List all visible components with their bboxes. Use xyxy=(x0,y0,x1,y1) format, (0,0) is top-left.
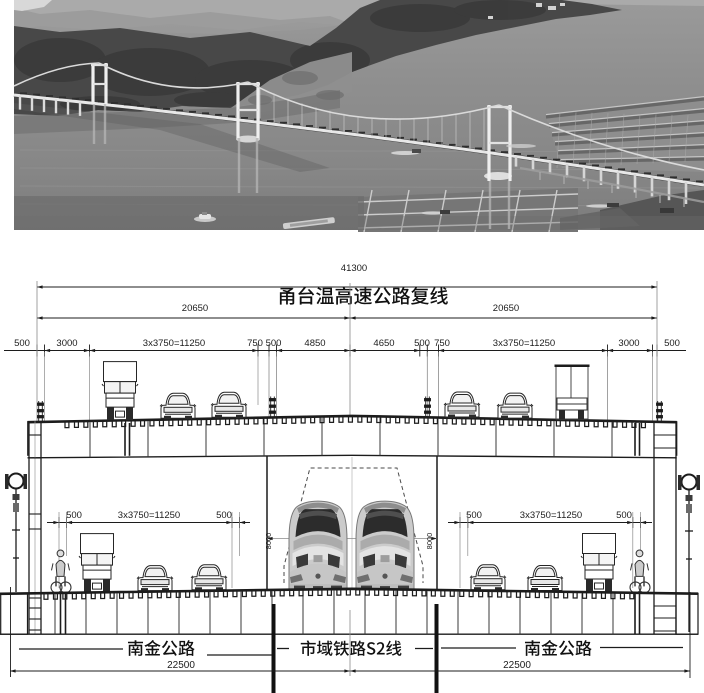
svg-text:3x3750=11250: 3x3750=11250 xyxy=(143,338,205,349)
svg-text:500: 500 xyxy=(664,338,680,349)
svg-text:22500: 22500 xyxy=(503,660,531,671)
svg-text:500: 500 xyxy=(266,338,282,349)
svg-text:20650: 20650 xyxy=(493,303,519,314)
svg-text:4850: 4850 xyxy=(304,338,325,349)
svg-text:22500: 22500 xyxy=(167,660,195,671)
svg-text:3000: 3000 xyxy=(56,338,77,349)
svg-text:4650: 4650 xyxy=(373,338,394,349)
svg-text:3x3750=11250: 3x3750=11250 xyxy=(520,510,582,521)
svg-text:750: 750 xyxy=(247,338,263,349)
svg-text:20650: 20650 xyxy=(182,303,208,314)
svg-text:3000: 3000 xyxy=(618,338,639,349)
svg-text:8000: 8000 xyxy=(425,533,434,550)
svg-text:500: 500 xyxy=(66,510,82,521)
svg-text:3x3750=11250: 3x3750=11250 xyxy=(118,510,180,521)
svg-text:500: 500 xyxy=(616,510,632,521)
svg-text:3x3750=11250: 3x3750=11250 xyxy=(493,338,555,349)
svg-text:500: 500 xyxy=(414,338,430,349)
svg-text:8000: 8000 xyxy=(264,533,273,550)
svg-text:500: 500 xyxy=(14,338,30,349)
svg-text:500: 500 xyxy=(216,510,232,521)
svg-text:750: 750 xyxy=(434,338,450,349)
svg-text:41300: 41300 xyxy=(341,263,367,274)
svg-text:500: 500 xyxy=(466,510,482,521)
